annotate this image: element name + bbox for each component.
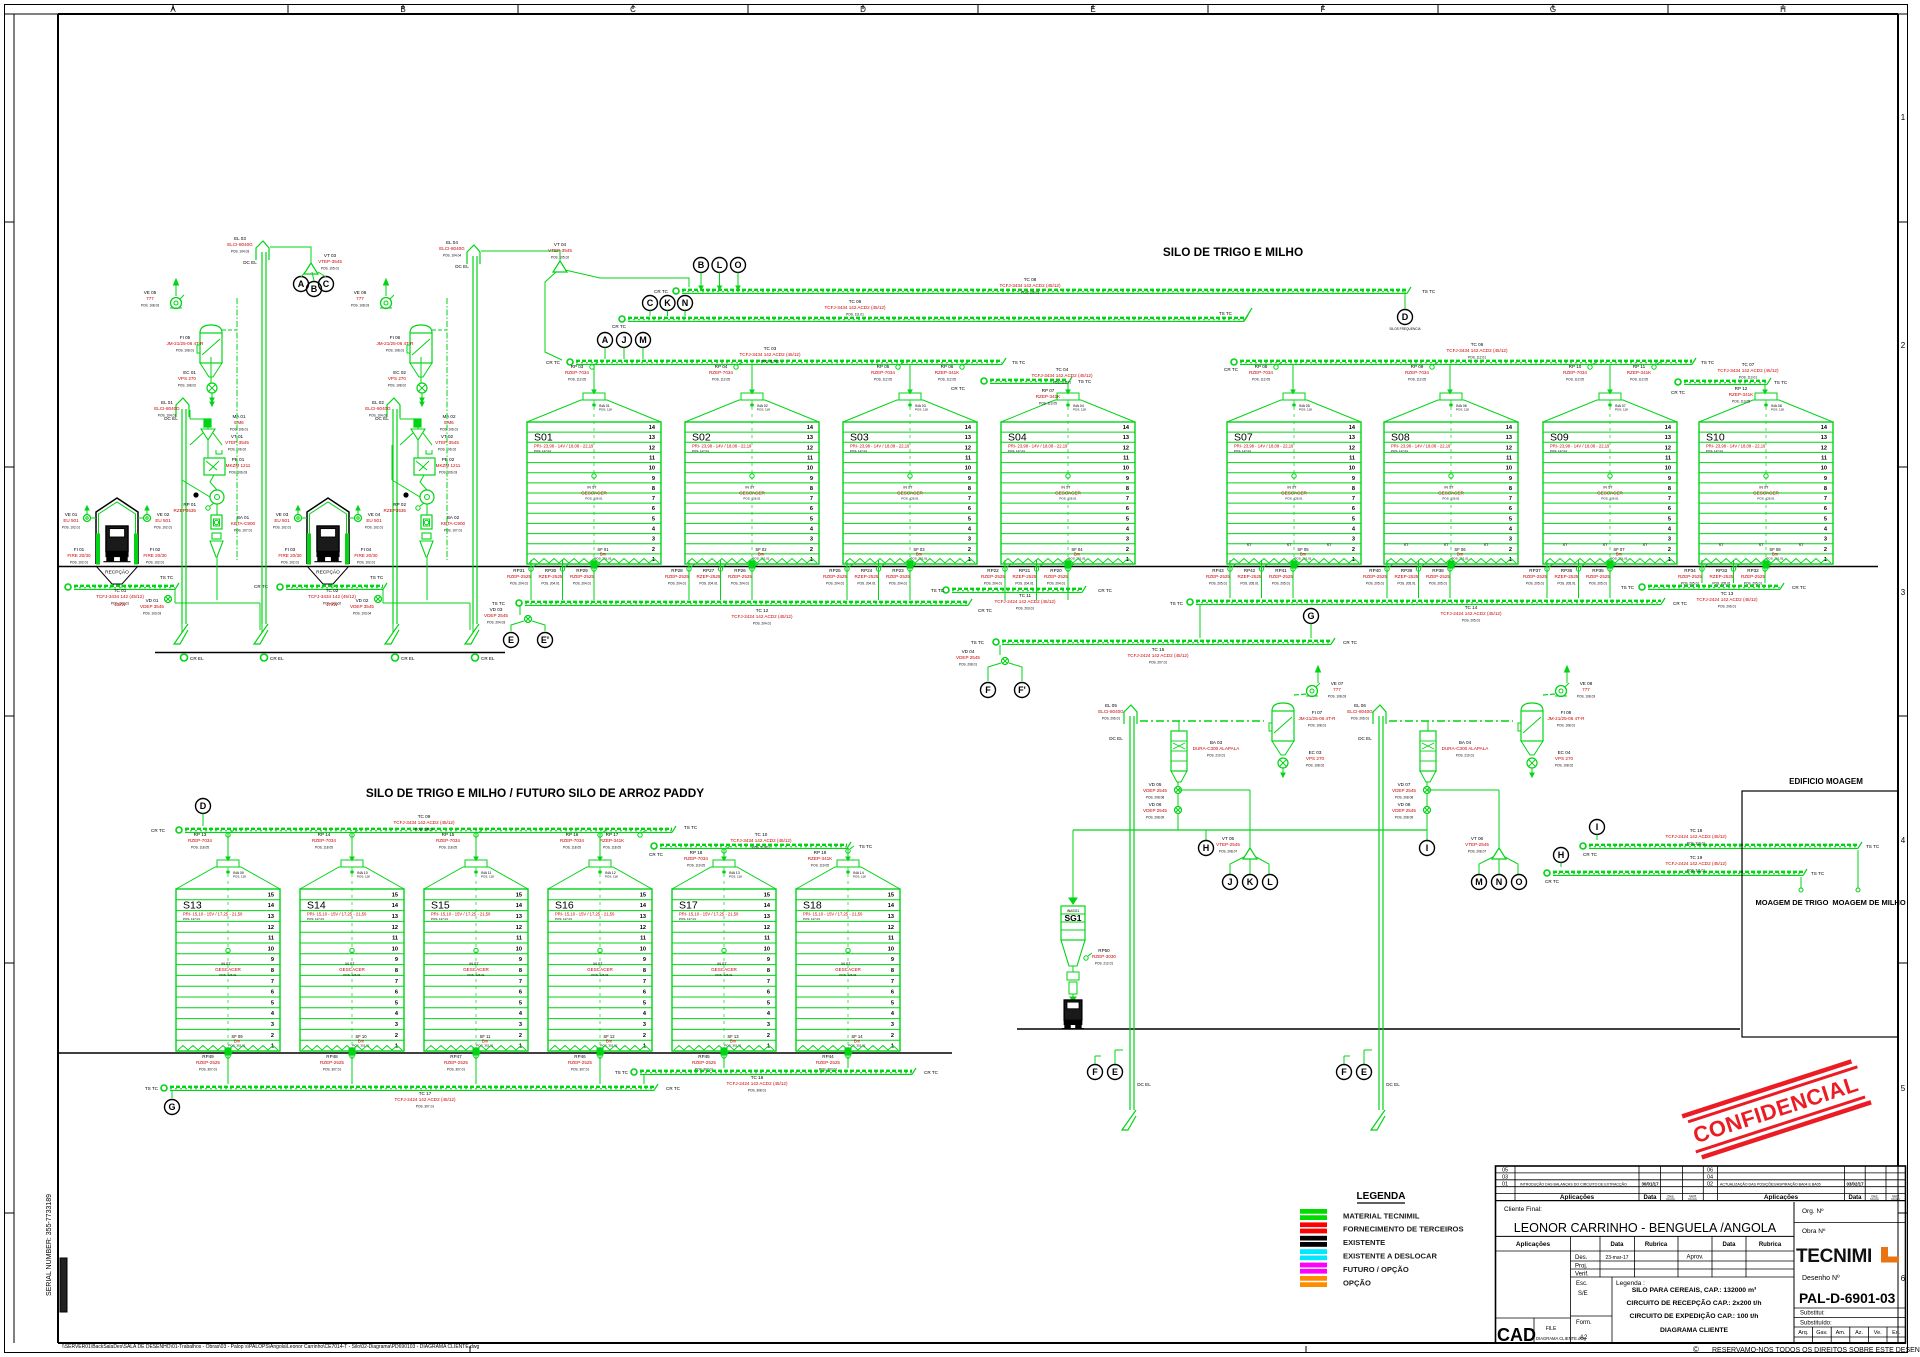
svg-text:5: 5 — [643, 1000, 646, 1006]
svg-text:POS. 104.04: POS. 104.04 — [443, 253, 461, 257]
svg-text:S09: S09 — [1550, 431, 1569, 443]
svg-text:PRI- 23,98 - 14V / 18,08 - 22,: PRI- 23,98 - 14V / 18,08 - 22,19 — [534, 443, 594, 448]
svg-text:7: 7 — [1824, 496, 1827, 502]
svg-text:POS. 208.08: POS. 208.08 — [1395, 795, 1413, 799]
svg-text:14: 14 — [516, 903, 523, 909]
svg-text:POS. 204.01: POS. 204.01 — [889, 581, 907, 585]
svg-text:11: 11 — [1665, 456, 1671, 462]
svg-text:TCFJ-3434 142 (45/12): TCFJ-3434 142 (45/12) — [96, 594, 144, 599]
svg-text:RZEP-2525: RZEP-2525 — [444, 1060, 468, 1065]
svg-text:23-mar-17: 23-mar-17 — [1605, 1255, 1628, 1261]
svg-text:02: 02 — [1707, 1181, 1713, 1187]
svg-text:POS. 118.05: POS. 118.05 — [191, 845, 209, 849]
svg-text:2: 2 — [891, 1033, 894, 1039]
svg-text:12: 12 — [1123, 445, 1129, 451]
svg-text:OPÇÃO: OPÇÃO — [1343, 1278, 1371, 1287]
svg-text:RZEP-2525: RZEP-2525 — [538, 574, 562, 579]
svg-text:Verif.: Verif. — [1575, 1272, 1589, 1278]
svg-text:9: 9 — [652, 476, 655, 482]
svg-text:POS. 108.02: POS. 108.02 — [178, 383, 196, 387]
svg-text:TCFJ-3434 142 ACD2 (45/12): TCFJ-3434 142 ACD2 (45/12) — [1717, 368, 1778, 373]
svg-text:BA 03: BA 03 — [1210, 740, 1223, 745]
svg-text:POS. 118: POS. 118 — [599, 408, 612, 412]
svg-text:DC EL: DC EL — [1137, 1082, 1151, 1087]
svg-text:S02: S02 — [692, 431, 711, 443]
svg-text:RZEP-2525: RZEP-2525 — [1394, 574, 1418, 579]
svg-text:PRI- 23,98 - 14V / 18,08 - 22,: PRI- 23,98 - 14V / 18,08 - 22,19 — [1008, 443, 1068, 448]
svg-text:D: D — [200, 801, 207, 811]
svg-text:J: J — [1227, 877, 1232, 887]
svg-text:POS. 108.03: POS. 108.03 — [351, 303, 369, 307]
svg-text:PRI- 15,10 - 15V / 17,25 - 21,: PRI- 15,10 - 15V / 17,25 - 21,50 — [555, 912, 615, 917]
svg-text:12: 12 — [888, 925, 894, 931]
svg-text:10: 10 — [807, 466, 813, 472]
svg-text:PRI- 15,10 - 15V / 17,25 - 21,: PRI- 15,10 - 15V / 17,25 - 21,50 — [183, 912, 243, 917]
svg-text:3: 3 — [519, 1022, 522, 1028]
svg-text:3: 3 — [968, 537, 971, 543]
svg-text:N: N — [1496, 877, 1503, 887]
svg-text:7: 7 — [767, 979, 770, 985]
svg-text:POS. 106.03: POS. 106.03 — [439, 470, 457, 474]
svg-text:VDEP 2545: VDEP 2545 — [484, 613, 508, 618]
svg-text:S04: S04 — [1008, 431, 1027, 443]
svg-text:06: 06 — [1707, 1168, 1713, 1174]
svg-text:M: M — [1475, 877, 1483, 887]
svg-text:GESCACER: GESCACER — [897, 491, 923, 496]
svg-text:RP25: RP25 — [829, 568, 841, 573]
svg-text:Am.: Am. — [1836, 1330, 1846, 1336]
svg-text:RZEP-2525: RZEP-2525 — [692, 1060, 716, 1065]
svg-text:POS. 112.01: POS. 112.01 — [1468, 355, 1486, 359]
svg-text:GESCACER: GESCACER — [587, 967, 613, 972]
svg-text:5: 5 — [810, 516, 813, 522]
svg-text:RESERVAMO-NOS TODOS OS DIREITO: RESERVAMO-NOS TODOS OS DIREITOS SOBRE ES… — [1712, 1347, 1920, 1354]
svg-text:VD 07: VD 07 — [1398, 782, 1411, 787]
svg-text:POS. 102.01: POS. 102.01 — [70, 560, 88, 564]
svg-text:11: 11 — [516, 936, 522, 942]
svg-text:3: 3 — [1352, 537, 1355, 543]
svg-text:RP 01: RP 01 — [183, 502, 196, 507]
svg-text:POS. 126.01: POS. 126.01 — [591, 973, 609, 977]
svg-text:GESCACER: GESCACER — [1597, 491, 1623, 496]
svg-text:RZEP-2525: RZEP-2525 — [728, 574, 752, 579]
svg-text:RP37: RP37 — [1529, 568, 1541, 573]
svg-text:ST: ST — [1484, 543, 1490, 547]
svg-text:RZEP-7034: RZEP-7034 — [1249, 370, 1273, 375]
svg-text:TS TC: TS TC — [160, 575, 174, 580]
svg-text:TS TC: TS TC — [684, 825, 698, 830]
svg-text:DURA-C300 ALAPALA: DURA-C300 ALAPALA — [1442, 746, 1490, 751]
svg-text:G: G — [168, 1102, 175, 1112]
svg-text:POS. 113.05: POS. 113.05 — [1039, 401, 1057, 405]
svg-text:G: G — [1307, 611, 1314, 621]
svg-text:4: 4 — [1901, 836, 1906, 845]
svg-text:PRI- 23,98 - 14V / 18,08 - 22,: PRI- 23,98 - 14V / 18,08 - 22,19 — [1706, 443, 1766, 448]
svg-text:TCFJ-3434 142 ACD2 (45/12): TCFJ-3434 142 ACD2 (45/12) — [1031, 373, 1092, 378]
svg-text:JM-21/25-06 4T-R: JM-21/25-06 4T-R — [1298, 716, 1336, 721]
svg-text:IN ST: IN ST — [221, 962, 231, 966]
svg-text:Substituído:: Substituído: — [1800, 1321, 1832, 1327]
svg-text:6: 6 — [810, 506, 813, 512]
svg-text:777: 777 — [1582, 687, 1590, 692]
svg-text:RZEP-7034: RZEP-7034 — [312, 838, 336, 843]
svg-text:RZEP-7034: RZEP-7034 — [1563, 370, 1587, 375]
svg-text:5: 5 — [1901, 1084, 1906, 1093]
svg-text:VD 08: VD 08 — [1398, 802, 1411, 807]
svg-text:RP 16: RP 16 — [566, 832, 579, 837]
svg-text:3: 3 — [891, 1022, 894, 1028]
svg-text:2: 2 — [271, 1033, 274, 1039]
svg-text:TS TC: TS TC — [1701, 360, 1715, 365]
svg-text:GESCACER: GESCACER — [1438, 491, 1464, 496]
svg-text:RZEP-2525: RZEP-2525 — [568, 1060, 592, 1065]
svg-text:VD 03: VD 03 — [490, 607, 503, 612]
svg-text:RZEP-2525: RZEP-2525 — [981, 574, 1005, 579]
svg-text:C: C — [647, 298, 654, 308]
svg-text:POS. 126.01: POS. 126.01 — [467, 973, 485, 977]
svg-text:E: E — [508, 635, 514, 645]
svg-text:IN ST: IN ST — [1759, 486, 1769, 490]
svg-text:11: 11 — [965, 456, 971, 462]
svg-text:GESCACER: GESCACER — [215, 967, 241, 972]
svg-text:777: 777 — [146, 296, 154, 301]
svg-text:777: 777 — [356, 296, 364, 301]
svg-text:POS. 103.03: POS. 103.03 — [143, 611, 161, 615]
svg-text:Rubrica: Rubrica — [1645, 1242, 1668, 1248]
svg-text:POS. 205.01: POS. 205.01 — [1240, 581, 1258, 585]
svg-text:POS. 118: POS. 118 — [1615, 408, 1628, 412]
svg-text:RP38: RP38 — [1432, 568, 1444, 573]
svg-text:POS. 106.01: POS. 106.01 — [230, 427, 248, 431]
svg-text:POS. 351.01: POS. 351.01 — [594, 557, 612, 561]
svg-text:CR TC: CR TC — [978, 608, 993, 613]
svg-text:FILE: FILE — [1546, 1326, 1557, 1332]
svg-text:MOAGEM DE TRIGO: MOAGEM DE TRIGO — [1756, 898, 1829, 907]
svg-text:9: 9 — [395, 957, 398, 963]
svg-text:CR TC: CR TC — [649, 852, 664, 857]
svg-text:VT 03: VT 03 — [324, 253, 337, 258]
svg-text:POS. 118: POS. 118 — [915, 408, 928, 412]
svg-text:POS. 102.01: POS. 102.01 — [357, 560, 375, 564]
svg-text:Org. Nº: Org. Nº — [1802, 1208, 1824, 1215]
svg-text:IN ST: IN ST — [745, 486, 755, 490]
svg-text:POS. 108.02: POS. 108.02 — [1555, 763, 1573, 767]
svg-text:DIAGRAMA CLIENTE: DIAGRAMA CLIENTE — [1660, 1327, 1729, 1334]
svg-text:H: H — [1558, 850, 1565, 860]
svg-text:15: 15 — [268, 892, 274, 898]
svg-text:RP32: RP32 — [1747, 568, 1759, 573]
svg-text:10: 10 — [764, 946, 770, 952]
svg-text:13: 13 — [268, 914, 274, 920]
svg-text:EC 01: EC 01 — [183, 370, 196, 375]
svg-text:POS. 119.05: POS. 119.05 — [811, 863, 829, 867]
svg-text:TCFJ-2424 142 ACD2 (45/12): TCFJ-2424 142 ACD2 (45/12) — [1696, 597, 1757, 602]
svg-text:11: 11 — [649, 456, 655, 462]
svg-text:POS. 351.01: POS. 351.01 — [1294, 557, 1312, 561]
svg-text:I: I — [1426, 843, 1429, 853]
svg-text:POS. 118.05: POS. 118.05 — [563, 845, 581, 849]
svg-text:CIRCUITO DE RECEPÇÃO CAP.: 2x2: CIRCUITO DE RECEPÇÃO CAP.: 2x200 t/h — [1627, 1298, 1762, 1307]
svg-text:POS. 105.01: POS. 105.01 — [321, 266, 339, 270]
svg-text:5: 5 — [1824, 516, 1827, 522]
svg-text:10: 10 — [516, 946, 522, 952]
svg-text:12: 12 — [516, 925, 522, 931]
svg-text:EL 01: EL 01 — [161, 400, 173, 405]
svg-text:14: 14 — [764, 903, 771, 909]
svg-text:RP46: RP46 — [574, 1054, 586, 1059]
svg-text:5: 5 — [968, 516, 971, 522]
svg-text:2: 2 — [1901, 341, 1906, 350]
svg-text:TCFJ-3434 142 ACD2 (45/12): TCFJ-3434 142 ACD2 (45/12) — [824, 305, 885, 310]
svg-text:ELCI-8040G: ELCI-8040G — [227, 242, 253, 247]
svg-text:POS. 110.01: POS. 110.01 — [1021, 290, 1039, 294]
svg-text:POS. 112.01: POS. 112.01 — [761, 359, 779, 363]
svg-text:FI 07: FI 07 — [1312, 710, 1323, 715]
svg-text:RZEP-7034: RZEP-7034 — [709, 370, 733, 375]
svg-text:VD 04: VD 04 — [962, 649, 975, 654]
svg-text:CR TC: CR TC — [1343, 640, 1358, 645]
svg-text:L: L — [1267, 877, 1273, 887]
svg-text:2: 2 — [652, 547, 655, 553]
svg-text:9: 9 — [1352, 476, 1355, 482]
svg-text:Substitui:: Substitui: — [1800, 1311, 1825, 1317]
svg-text:RP44: RP44 — [822, 1054, 834, 1059]
svg-text:POS. 126.01: POS. 126.01 — [1442, 497, 1460, 501]
svg-text:RP 19: RP 19 — [814, 850, 827, 855]
svg-text:POS. 205.01: POS. 205.01 — [1209, 581, 1227, 585]
svg-text:TS TC: TS TC — [1422, 289, 1436, 294]
svg-text:IN ST: IN ST — [1287, 486, 1297, 490]
svg-text:9: 9 — [968, 476, 971, 482]
svg-text:DURA-C300 ALAPALA: DURA-C300 ALAPALA — [1193, 746, 1241, 751]
svg-text:POS. 311.01: POS. 311.01 — [1687, 868, 1705, 872]
svg-text:S/E: S/E — [1578, 1291, 1588, 1297]
svg-text:IN ST: IN ST — [587, 486, 597, 490]
svg-text:12: 12 — [649, 445, 655, 451]
svg-text:RZEP-341K: RZEP-341K — [1729, 392, 1754, 397]
svg-text:12: 12 — [392, 925, 398, 931]
svg-text:TS TC: TS TC — [1012, 360, 1026, 365]
svg-text:11: 11 — [888, 936, 894, 942]
svg-text:RP 10: RP 10 — [1569, 364, 1582, 369]
svg-text:RZEP-341K: RZEP-341K — [600, 838, 625, 843]
svg-text:RP29: RP29 — [576, 568, 588, 573]
svg-text:TC 15: TC 15 — [1152, 647, 1165, 652]
svg-text:13: 13 — [807, 435, 813, 441]
svg-text:POS. 208.07: POS. 208.07 — [1219, 849, 1237, 853]
svg-text:Proj.: Proj. — [1575, 1264, 1588, 1270]
svg-text:POS. 126.01: POS. 126.01 — [1601, 497, 1619, 501]
svg-text:POS. 126.01: POS. 126.01 — [1757, 497, 1775, 501]
svg-text:POS. 112.05: POS. 112.05 — [874, 377, 892, 381]
svg-text:EL 05: EL 05 — [1105, 703, 1117, 708]
svg-text:TC 17: TC 17 — [419, 1091, 432, 1096]
svg-text:ACTUALIZAÇÃO DAS POSIÇÕES/ASPI: ACTUALIZAÇÃO DAS POSIÇÕES/ASPIRAÇÃO BA04… — [1720, 1181, 1821, 1186]
svg-text:RZEP-2525: RZEP-2525 — [1363, 574, 1387, 579]
svg-text:GESCACER: GESCACER — [1281, 491, 1307, 496]
svg-text:2: 2 — [1668, 547, 1671, 553]
svg-text:K: K — [664, 298, 671, 308]
svg-text:POS. 117.01: POS. 117.01 — [1706, 449, 1723, 453]
svg-text:POS. 118: POS. 118 — [1456, 408, 1469, 412]
svg-text:03: 03 — [1502, 1175, 1508, 1181]
svg-text:POS. 208.09: POS. 208.09 — [1395, 815, 1413, 819]
svg-text:5: 5 — [1668, 516, 1671, 522]
svg-text:S16: S16 — [555, 900, 574, 912]
svg-text:TC 13: TC 13 — [1721, 591, 1734, 596]
svg-text:1: 1 — [1901, 113, 1906, 122]
svg-text:POS. 206.01: POS. 206.01 — [1718, 604, 1736, 608]
svg-text:Desenho Nº: Desenho Nº — [1802, 1275, 1840, 1282]
svg-text:IN ST: IN ST — [1444, 486, 1454, 490]
svg-text:Aplicações: Aplicações — [1560, 1194, 1595, 1201]
svg-text:TC 07: TC 07 — [1742, 362, 1755, 367]
svg-text:GESCACER: GESCACER — [1753, 491, 1779, 496]
svg-text:EC 04: EC 04 — [1558, 750, 1571, 755]
svg-text:VT 04: VT 04 — [554, 242, 567, 247]
svg-text:POS. 112.05: POS. 112.05 — [712, 377, 730, 381]
svg-text:POS. 203.01: POS. 203.01 — [1016, 606, 1034, 610]
svg-text:CR EL: CR EL — [270, 656, 284, 661]
svg-text:CR TC: CR TC — [612, 324, 627, 329]
svg-text:ST: ST — [1327, 543, 1333, 547]
svg-text:13: 13 — [888, 914, 894, 920]
svg-text:8: 8 — [643, 968, 646, 974]
svg-text:RZEP-2525: RZEP-2525 — [854, 574, 878, 579]
svg-text:TCFJ-2424 142 ACD2 (45/12): TCFJ-2424 142 ACD2 (45/12) — [1127, 653, 1188, 658]
svg-text:CAD: CAD — [1497, 1325, 1536, 1345]
svg-text:15: 15 — [888, 892, 894, 898]
svg-text:2: 2 — [810, 547, 813, 553]
svg-text:3: 3 — [652, 537, 655, 543]
svg-text:17kW: 17kW — [326, 602, 338, 607]
svg-text:GESCACER: GESCACER — [711, 967, 737, 972]
svg-text:TC 14: TC 14 — [1465, 605, 1478, 610]
svg-text:Norm.: Norm. — [1688, 1198, 1697, 1202]
svg-text:DC EL: DC EL — [375, 416, 389, 421]
svg-text:Aplicações: Aplicações — [1764, 1194, 1799, 1201]
svg-text:POS. 117.01: POS. 117.01 — [1008, 449, 1025, 453]
svg-text:TS TC: TS TC — [971, 640, 985, 645]
svg-text:POS. 204.01: POS. 204.01 — [857, 581, 875, 585]
svg-text:RP 18: RP 18 — [690, 850, 703, 855]
svg-text:10: 10 — [888, 946, 894, 952]
svg-text:RZEP-2525: RZEP-2525 — [1741, 574, 1765, 579]
svg-text:TC 10: TC 10 — [755, 832, 768, 837]
svg-text:SG1: SG1 — [1064, 913, 1081, 923]
svg-text:9: 9 — [519, 957, 522, 963]
svg-text:POS. 118: POS. 118 — [357, 875, 370, 879]
svg-text:PRI- 23,98 - 14V / 18,08 - 22,: PRI- 23,98 - 14V / 18,08 - 22,19 — [692, 443, 752, 448]
svg-text:VE 01: VE 01 — [65, 512, 78, 517]
svg-text:FI 05: FI 05 — [180, 335, 191, 340]
svg-text:RP40: RP40 — [1369, 568, 1381, 573]
svg-text:03/02/17: 03/02/17 — [1846, 1182, 1864, 1187]
svg-text:POS. 108.01: POS. 108.01 — [1308, 723, 1326, 727]
svg-text:PRI- 15,10 - 15V / 17,25 - 21,: PRI- 15,10 - 15V / 17,25 - 21,50 — [307, 912, 367, 917]
svg-text:POS. 117.01: POS. 117.01 — [850, 449, 867, 453]
svg-text:PRI- 23,98 - 14V / 18,08 - 22,: PRI- 23,98 - 14V / 18,08 - 22,19 — [1234, 443, 1294, 448]
svg-text:ELCI-8040G: ELCI-8040G — [1098, 709, 1124, 714]
svg-text:10: 10 — [649, 466, 655, 472]
svg-text:13: 13 — [1821, 435, 1827, 441]
svg-text:Aprov.: Aprov. — [1687, 1255, 1704, 1261]
svg-text:POS. 204.01: POS. 204.01 — [510, 581, 528, 585]
svg-text:POS. 117.01: POS. 117.01 — [307, 917, 324, 921]
svg-text:GESCACER: GESCACER — [339, 967, 365, 972]
svg-text:7: 7 — [810, 496, 813, 502]
svg-text:6: 6 — [891, 990, 894, 996]
svg-text:POS. 351.01: POS. 351.01 — [1610, 557, 1628, 561]
svg-text:EU 501: EU 501 — [366, 518, 382, 523]
svg-text:6: 6 — [395, 990, 398, 996]
svg-text:Cliente Final:: Cliente Final: — [1504, 1206, 1542, 1213]
svg-text:EU 501: EU 501 — [155, 518, 171, 523]
svg-text:K: K — [1247, 877, 1254, 887]
svg-text:POS. 206.01: POS. 206.01 — [1102, 716, 1120, 720]
svg-text:POS. 108.01: POS. 108.01 — [1557, 723, 1575, 727]
svg-text:DIAGRAMA CLIENTE.dwg: DIAGRAMA CLIENTE.dwg — [1536, 1336, 1586, 1341]
svg-text:10: 10 — [1506, 466, 1512, 472]
svg-text:13: 13 — [640, 914, 646, 920]
svg-text:VDEP 2545: VDEP 2545 — [956, 655, 980, 660]
svg-text:POS. 117.01: POS. 117.01 — [803, 917, 820, 921]
svg-text:3: 3 — [1824, 537, 1827, 543]
svg-text:EXISTENTE: EXISTENTE — [1343, 1238, 1385, 1247]
svg-text:POS. 126.01: POS. 126.01 — [219, 973, 237, 977]
svg-text:RZEP-2525: RZEP-2525 — [696, 574, 720, 579]
svg-text:8: 8 — [652, 486, 655, 492]
svg-text:POS. 106.03: POS. 106.03 — [229, 470, 247, 474]
svg-text:S10: S10 — [1706, 431, 1725, 443]
svg-text:EXISTENTE A DESLOCAR: EXISTENTE A DESLOCAR — [1343, 1252, 1437, 1261]
svg-text:11: 11 — [764, 936, 770, 942]
svg-text:KBTA-C900: KBTA-C900 — [441, 521, 466, 526]
svg-text:TC 01: TC 01 — [114, 588, 127, 593]
svg-text:POS. 204.01: POS. 204.01 — [1015, 581, 1033, 585]
svg-text:9: 9 — [767, 957, 770, 963]
svg-text:M: M — [639, 335, 647, 345]
svg-text:ST: ST — [1603, 543, 1609, 547]
svg-text:POS. 208.09: POS. 208.09 — [1146, 815, 1164, 819]
svg-text:POS. 112.05: POS. 112.05 — [568, 377, 586, 381]
svg-text:11: 11 — [1506, 456, 1512, 462]
svg-text:RP 09: RP 09 — [1411, 364, 1424, 369]
svg-text:DC EL: DC EL — [243, 260, 257, 265]
svg-text:VE 03: VE 03 — [276, 512, 289, 517]
svg-text:POS. 307.01: POS. 307.01 — [416, 1104, 434, 1108]
svg-text:POS. 104.03: POS. 104.03 — [231, 249, 249, 253]
svg-text:7: 7 — [1126, 496, 1129, 502]
svg-text:RZEP-341K: RZEP-341K — [808, 856, 833, 861]
svg-text:15: 15 — [516, 892, 522, 898]
svg-text:VE 06: VE 06 — [354, 290, 367, 295]
svg-text:PRI- 23,98 - 14V / 18,08 - 22,: PRI- 23,98 - 14V / 18,08 - 22,19 — [850, 443, 910, 448]
svg-text:DC EL: DC EL — [1109, 736, 1123, 741]
svg-text:ELCI-8040G: ELCI-8040G — [439, 246, 465, 251]
svg-text:TS TC: TS TC — [1774, 380, 1788, 385]
svg-text:TCFJ-3434 142 ACD2 (45/12): TCFJ-3434 142 ACD2 (45/12) — [739, 352, 800, 357]
svg-text:Rubrica: Rubrica — [1759, 1242, 1782, 1248]
svg-text:TC 03: TC 03 — [764, 346, 777, 351]
svg-text:10: 10 — [392, 946, 398, 952]
svg-text:6: 6 — [1509, 506, 1512, 512]
svg-text:CIRCUITO DE EXPEDIÇÃO CAP.: 10: CIRCUITO DE EXPEDIÇÃO CAP.: 100 t/h — [1630, 1311, 1759, 1320]
svg-text:TCFJ-2424 142 ACD2 (45/12): TCFJ-2424 142 ACD2 (45/12) — [394, 1097, 455, 1102]
svg-text:POS. 102.01: POS. 102.01 — [146, 560, 164, 564]
svg-text:6: 6 — [1352, 506, 1355, 512]
svg-text:JM-21/25-06 4T-R: JM-21/25-06 4T-R — [1547, 716, 1585, 721]
